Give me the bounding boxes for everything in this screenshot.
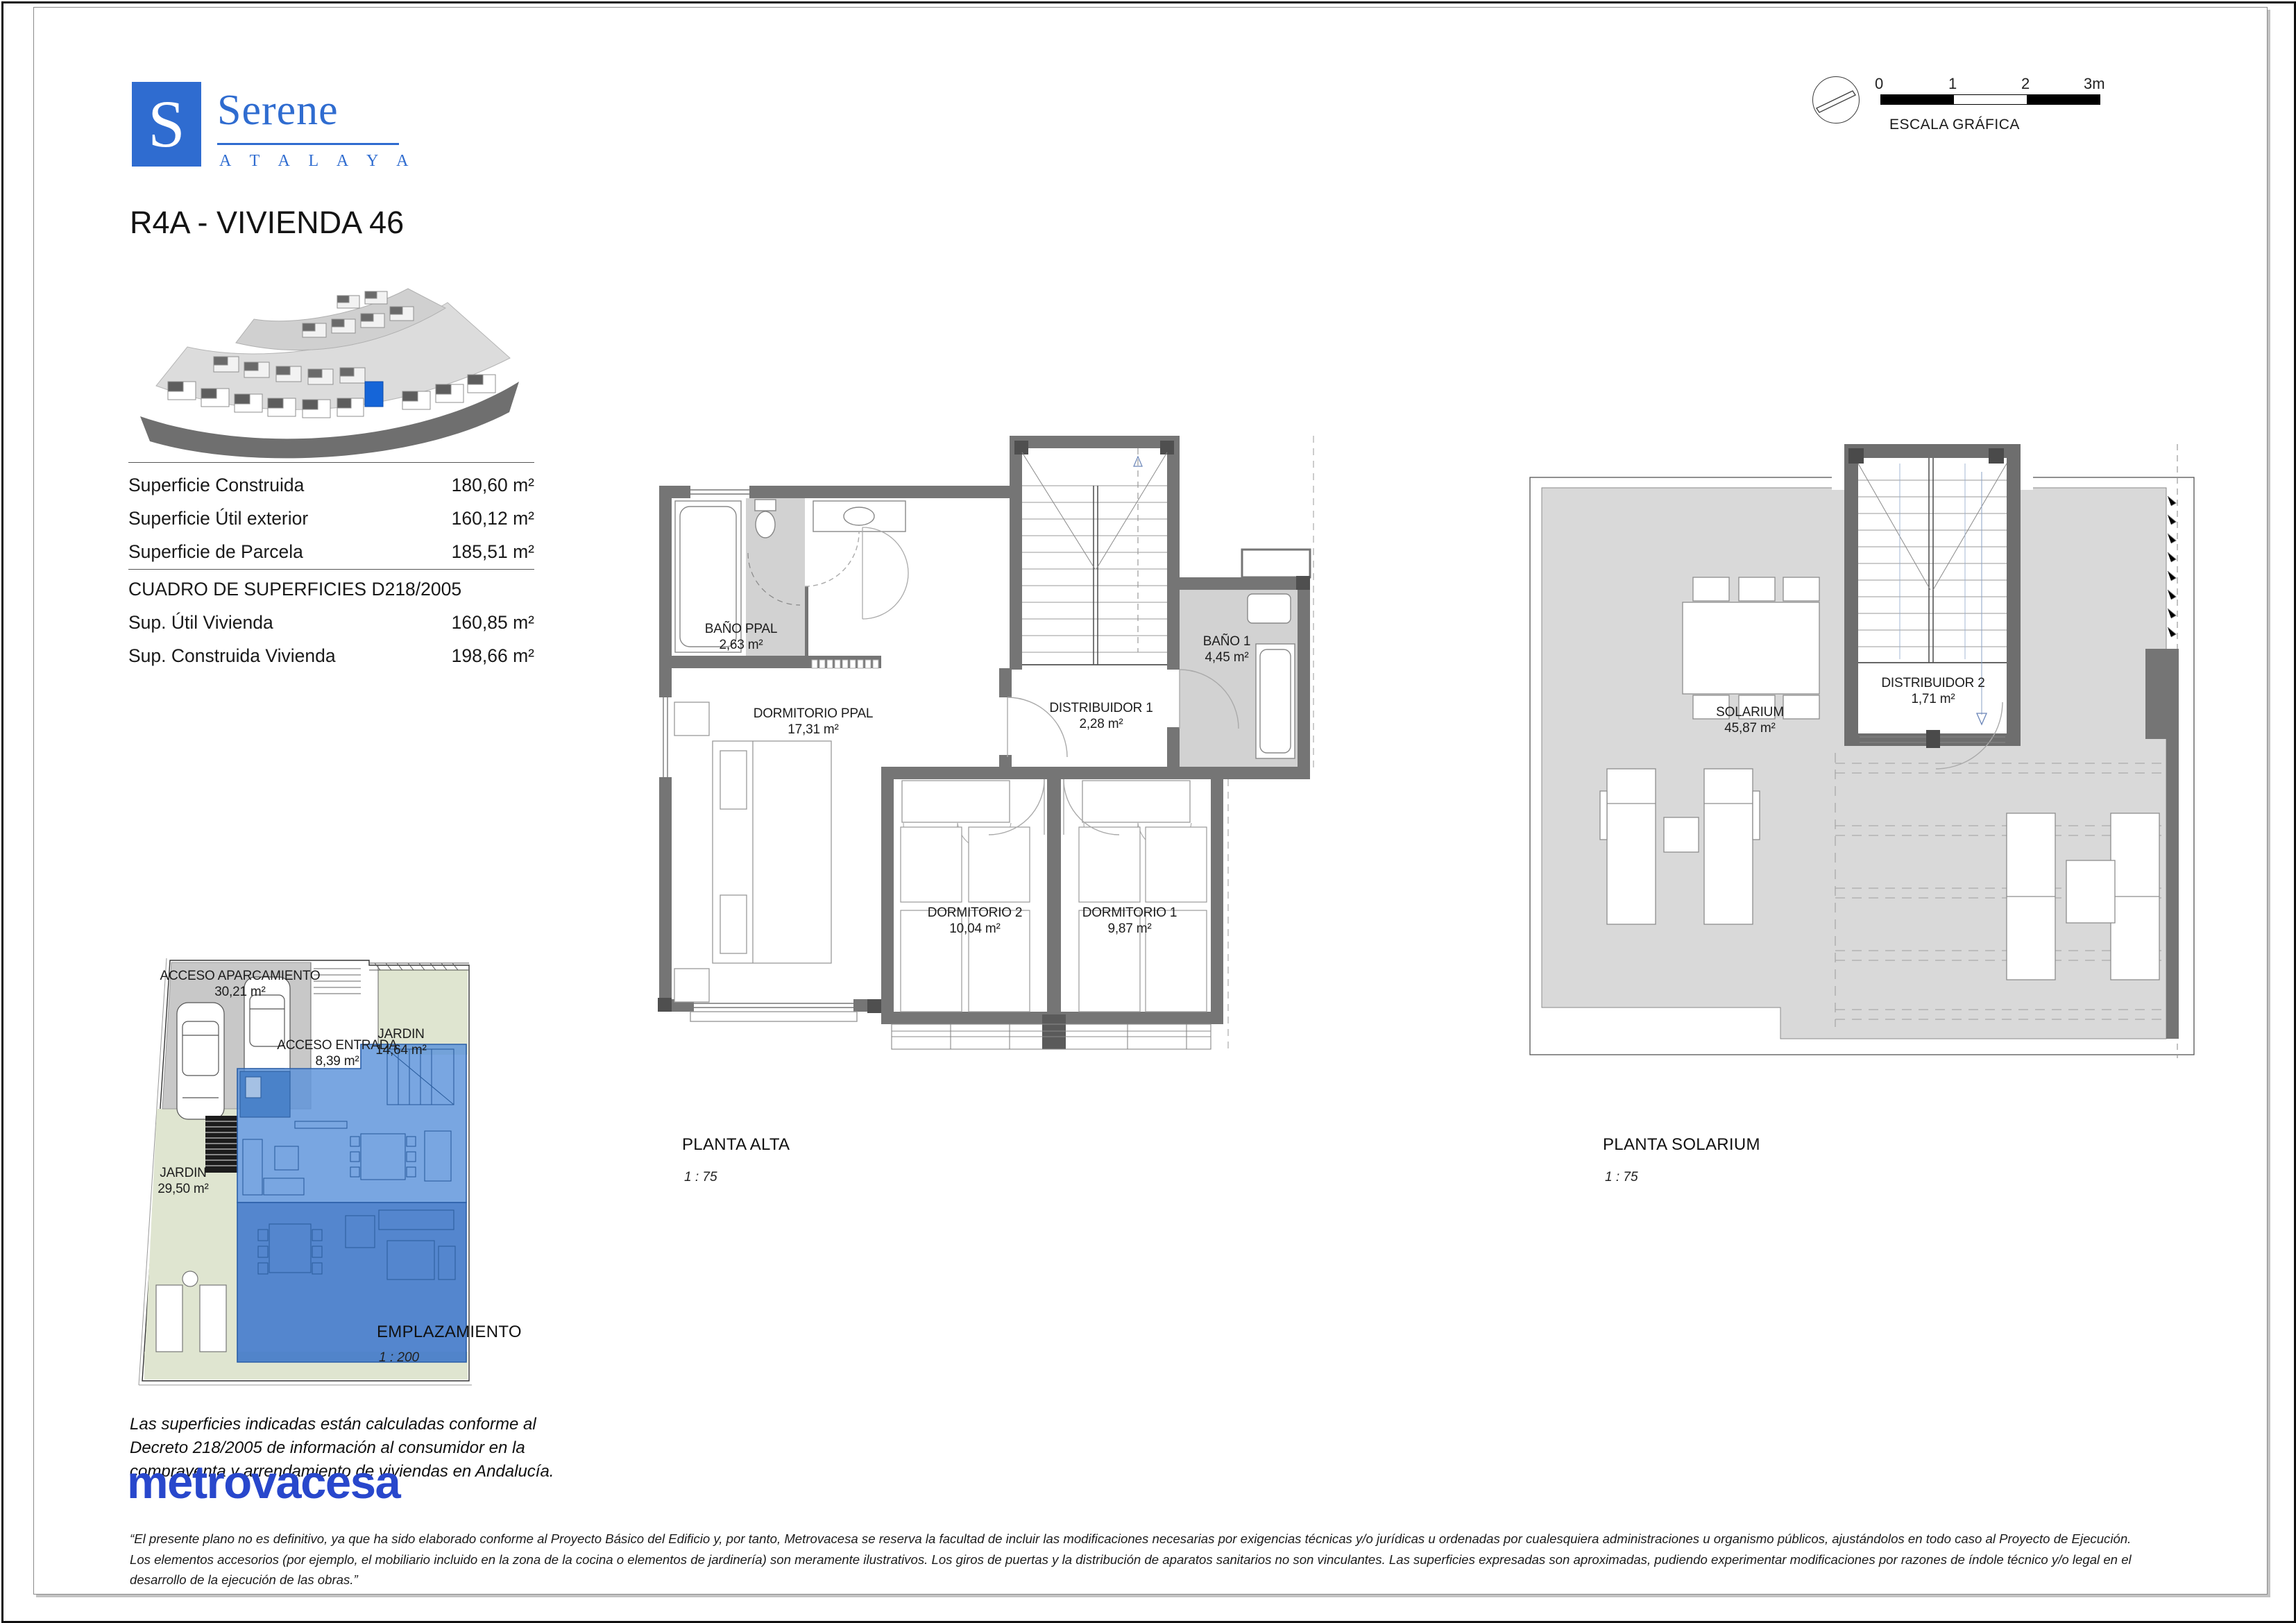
row-label: Sup. Construida Vivienda — [128, 645, 336, 667]
row-label: Sup. Útil Vivienda — [128, 612, 273, 634]
legal-disclaimer: “El presente plano no es definitivo, ya … — [130, 1529, 2132, 1590]
row-value: 198,66 m² — [452, 645, 534, 667]
plan-caption: PLANTA SOLARIUM — [1603, 1135, 1760, 1155]
scale-tick-2: 2 — [2021, 75, 2030, 93]
row-label: Superficie Útil exterior — [128, 508, 308, 529]
zone-label: JARDIN14,64 m² — [375, 1026, 426, 1058]
row-value: 160,12 m² — [452, 508, 534, 529]
row-label: Superficie de Parcela — [128, 541, 303, 563]
row-value: 185,51 m² — [452, 541, 534, 563]
table-section-title: CUADRO DE SUPERFICIES D218/2005 — [128, 579, 534, 600]
room-label: BAÑO PPAL2,63 m² — [705, 621, 778, 653]
row-value: 180,60 m² — [452, 475, 534, 496]
room-label: DORMITORIO 19,87 m² — [1082, 905, 1177, 937]
plan-sheet: { "header": { "logo_letter": "S", "brand… — [0, 0, 2296, 1623]
room-label: DISTRIBUIDOR 12,28 m² — [1049, 700, 1153, 732]
table-row: Sup. Útil Vivienda 160,85 m² — [128, 612, 534, 634]
scale-tick-3m: 3m — [2084, 75, 2105, 93]
planta-alta-plan — [645, 416, 1332, 1062]
scale-bar-label: ESCALA GRÁFICA — [1889, 117, 2020, 133]
highlighted-unit — [365, 382, 383, 407]
brand-name: Serene — [217, 86, 339, 135]
row-label: Superficie Construida — [128, 475, 304, 496]
logo-letter: S — [148, 91, 185, 158]
plan-caption: PLANTA ALTA — [682, 1135, 790, 1155]
room-label: DORMITORIO PPAL17,31 m² — [754, 706, 874, 738]
room-label: DORMITORIO 210,04 m² — [928, 905, 1023, 937]
plan-scale: 1 : 75 — [684, 1170, 717, 1185]
plan-caption: EMPLAZAMIENTO — [377, 1323, 522, 1342]
table-rule-mid — [128, 569, 534, 570]
aerial-development-view — [132, 283, 534, 460]
table-row: Superficie Útil exterior 160,12 m² — [128, 508, 534, 529]
table-row: Superficie Construida 180,60 m² — [128, 475, 534, 496]
table-rule-top — [128, 462, 534, 463]
scale-tick-1: 1 — [1948, 75, 1957, 93]
scale-bar — [1880, 94, 2100, 105]
brand-subname: A T A L A Y A — [219, 152, 416, 171]
planta-solarium-plan — [1520, 430, 2296, 1076]
row-value: 160,85 m² — [452, 612, 534, 634]
brand-rule — [217, 143, 399, 145]
zone-label: JARDIN29,50 m² — [158, 1165, 208, 1197]
page-title: R4A - VIVIENDA 46 — [130, 205, 404, 241]
table-row: Sup. Construida Vivienda 198,66 m² — [128, 645, 534, 667]
scale-tick-0: 0 — [1875, 75, 1883, 93]
north-needle-icon — [1808, 72, 1864, 128]
room-label: DISTRIBUIDOR 21,71 m² — [1881, 675, 1984, 707]
table-row: Superficie de Parcela 185,51 m² — [128, 541, 534, 563]
room-label: BAÑO 14,45 m² — [1203, 634, 1251, 665]
zone-label: ACCESO APARCAMIENTO30,21 m² — [160, 968, 321, 1000]
room-label: SOLARIUM45,87 m² — [1716, 704, 1784, 736]
plan-scale: 1 : 75 — [1605, 1170, 1638, 1185]
metrovacesa-logo: metrovacesa — [127, 1456, 400, 1509]
plan-scale: 1 : 200 — [379, 1350, 419, 1366]
serene-logo-icon: S — [132, 82, 201, 167]
